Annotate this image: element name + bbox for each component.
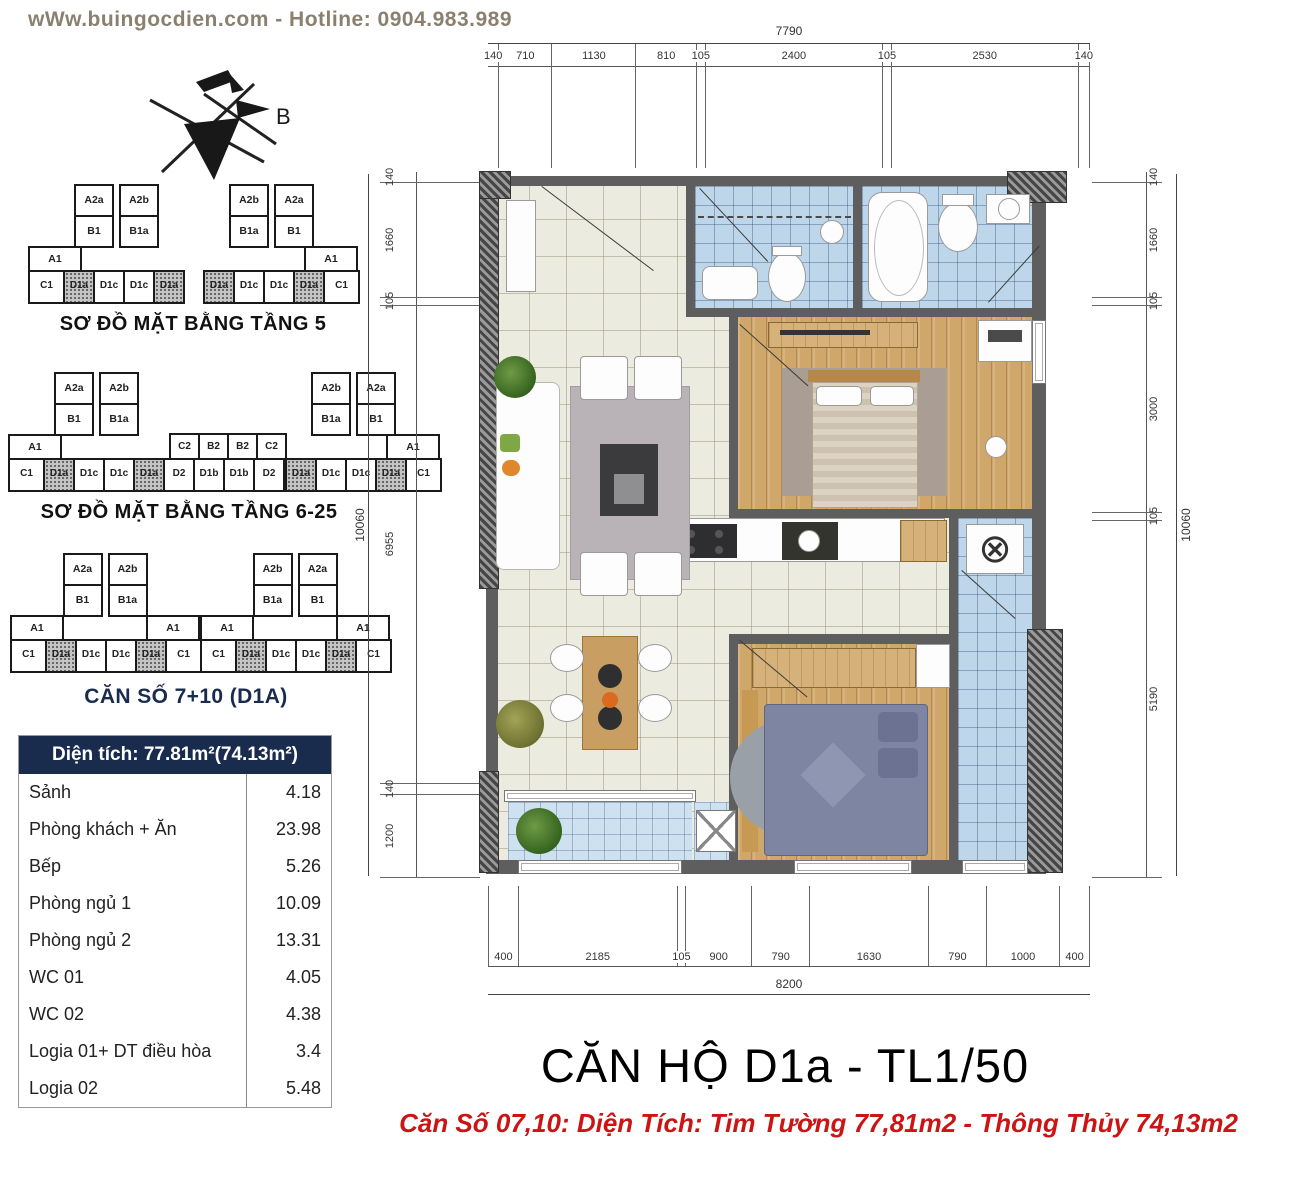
- toilet-wc2: [938, 202, 978, 252]
- dim-segment: 790: [929, 886, 987, 966]
- diagram-clusters: A2aB1A2bB1aA1A1C1D1aD1cD1cD1aC1A2bB1aA2a…: [10, 553, 362, 673]
- unit-row: D2D1bD1bD2: [163, 458, 285, 492]
- unit-cell: D1c: [123, 270, 155, 304]
- dim-label: 7790: [776, 24, 803, 38]
- bathtub-basin: [874, 200, 924, 296]
- dim-segment: 1630: [810, 886, 929, 966]
- dim-segment: 105: [380, 298, 480, 306]
- dim-segment: 105: [1092, 513, 1162, 521]
- plant: [516, 808, 562, 854]
- coffee-table-tray: [614, 474, 644, 504]
- tower-unit-label: B1: [65, 586, 101, 615]
- tower-unit-label: A2a: [56, 374, 92, 405]
- unit-cell: C1: [165, 639, 202, 673]
- unit-cell: D1b: [193, 458, 225, 492]
- window-bedroom2: [794, 860, 912, 874]
- watermark-text: wWw.buingocdien.com - Hotline: 0904.983.…: [28, 8, 512, 32]
- dim-label: 790: [948, 951, 966, 963]
- dining-plate: [598, 664, 622, 688]
- tower-unit-label: B1a: [313, 405, 349, 434]
- dim-label: 6955: [384, 532, 396, 556]
- dim-segment: 900: [686, 886, 752, 966]
- dim-segment: 2400: [706, 44, 883, 168]
- tower-unit-label: A2b: [110, 555, 146, 586]
- unit-cell: D1a: [45, 639, 77, 673]
- dim-segment: 140: [1079, 44, 1090, 168]
- sink-basin: [998, 198, 1020, 220]
- sink-bowl: [798, 530, 820, 552]
- unit-cell: D1a: [133, 458, 165, 492]
- dimension-strip-bottom: 400218510590079016307901000400 8200: [488, 886, 1090, 1001]
- unit-cell: D1c: [295, 639, 327, 673]
- dining-chair: [550, 694, 584, 722]
- dining-chair: [638, 644, 672, 672]
- a1-row: A1: [28, 246, 183, 272]
- wall-top: [486, 176, 1046, 186]
- window-loggia2: [518, 860, 682, 874]
- unit-cell: D1a: [325, 639, 357, 673]
- dim-label: 1630: [857, 951, 881, 963]
- monitor: [988, 330, 1022, 342]
- dim-label: 900: [710, 951, 728, 963]
- room-area: 23.98: [246, 811, 331, 848]
- column-bottom-right: [1028, 630, 1062, 872]
- tower-row: A2bB1aA2aB1: [253, 553, 338, 617]
- unit-cell: D1c: [233, 270, 265, 304]
- wall-loggia1-left: [949, 518, 958, 860]
- ottoman: [634, 356, 682, 400]
- tower-row: A2aB1A2bB1a: [74, 184, 183, 248]
- room-name: Phòng ngủ 2: [19, 922, 246, 959]
- kitchen-cabinet: [900, 520, 947, 562]
- dim-segment: 140: [380, 172, 480, 183]
- dim-label: 2530: [973, 50, 997, 62]
- area-table-body: Sảnh4.18Phòng khách + Ăn23.98Bếp5.26Phòn…: [19, 774, 331, 1107]
- tower-unit-label: B1: [76, 217, 112, 246]
- plant: [494, 356, 536, 398]
- building-cluster: A2aB1A2bB1aA1C1D1aD1cD1cD1a: [28, 184, 183, 304]
- tower-unit-label: B1a: [121, 217, 157, 246]
- table-row: Logia 025.48: [19, 1070, 331, 1107]
- room-area: 4.18: [246, 774, 331, 811]
- tower: A2bB1a: [108, 553, 148, 617]
- room-area: 5.26: [246, 848, 331, 885]
- wardrobe-bedroom2: [752, 648, 916, 688]
- room-name: Logia 02: [19, 1070, 246, 1107]
- tower-unit-label: A2b: [231, 186, 267, 217]
- tower-unit-label: A2a: [276, 186, 312, 217]
- dim-segment: 2185: [519, 886, 678, 966]
- dim-segment: 1660: [1092, 183, 1162, 298]
- tower-unit-label: B1a: [231, 217, 267, 246]
- tower-unit-label: A2a: [76, 186, 112, 217]
- dim-segment: 1200: [380, 795, 480, 878]
- unit-cell: D2: [163, 458, 195, 492]
- tower: A2aB1: [74, 184, 114, 248]
- dim-segment: 140: [488, 44, 499, 168]
- tower-unit-label: A2b: [121, 186, 157, 217]
- bed1-pillow: [816, 386, 862, 406]
- dimension-total-top: 7790: [488, 24, 1090, 44]
- tower: A2aB1: [63, 553, 103, 617]
- entry-closet: [506, 200, 536, 292]
- dim-label: 2185: [586, 951, 610, 963]
- unit-cell: D1b: [223, 458, 255, 492]
- unit-cell: D1c: [73, 458, 105, 492]
- dim-label: 790: [772, 951, 790, 963]
- dimension-line: [1176, 174, 1177, 876]
- room-name: Logia 01+ DT điều hòa: [19, 1033, 246, 1070]
- dim-segment: 140: [1092, 172, 1162, 183]
- fruit-bowl: [602, 692, 618, 708]
- wall-wc-bottom: [686, 308, 1046, 317]
- toilet-tank-wc1: [772, 246, 802, 256]
- tower-unit-label: B1a: [255, 586, 291, 615]
- unit-cell: A1: [146, 615, 200, 641]
- a1-row: A1A1: [10, 615, 200, 641]
- tower: A2bB1a: [229, 184, 269, 248]
- table-row: Phòng ngủ 110.09: [19, 885, 331, 922]
- tower: A2bB1a: [253, 553, 293, 617]
- compass-label: B: [276, 104, 291, 129]
- tower-unit-label: A2a: [300, 555, 336, 586]
- corner-unit-bedroom2: [916, 644, 950, 688]
- dim-label: 10060: [353, 508, 367, 541]
- unit-cell: D1a: [63, 270, 95, 304]
- dining-plate: [598, 706, 622, 730]
- building-cluster: A2aB1A2bB1aA1A1C1D1aD1cD1cD1aC1: [10, 553, 200, 673]
- wall-bedroom2-top: [729, 634, 949, 644]
- tower: A2bB1a: [99, 372, 139, 436]
- dim-segment: 400: [1060, 886, 1090, 966]
- dimension-segments-top: 140710113081010524001052530140: [488, 44, 1090, 168]
- table-row: Bếp5.26: [19, 848, 331, 885]
- room-area: 4.38: [246, 996, 331, 1033]
- table-row: WC 014.05: [19, 959, 331, 996]
- unit-cell: D1a: [43, 458, 75, 492]
- unit-row: C1D1aD1cD1cD1aC1: [10, 639, 200, 673]
- dimension-line: [488, 994, 1090, 995]
- page-title: CĂN HỘ D1a - TL1/50: [480, 1038, 1090, 1093]
- bed2-pillow: [878, 712, 918, 742]
- unit-cell: D1a: [285, 458, 317, 492]
- diagram-title: SƠ ĐỒ MẶT BẰNG TẦNG 6-25: [8, 501, 370, 524]
- floor-diagram-tang5: A2aB1A2bB1aA1C1D1aD1cD1cD1aA2bB1aA2aB1A1…: [28, 184, 358, 336]
- table-row: Sảnh4.18: [19, 774, 331, 811]
- dim-segment: 105: [883, 44, 892, 168]
- toilet-wc1: [768, 252, 806, 302]
- dim-label: 2400: [782, 50, 806, 62]
- dim-label: 1660: [384, 227, 396, 251]
- dim-segment: 3000: [1092, 306, 1162, 513]
- tv-cabinet: [768, 322, 918, 348]
- tower-unit-label: A2b: [101, 374, 137, 405]
- unit-cell: D1c: [93, 270, 125, 304]
- dim-segment: 6955: [380, 306, 480, 784]
- unit-row: C1D1aD1cD1cD1a: [28, 270, 183, 304]
- wall-bedroom1-left: [729, 317, 738, 509]
- dining-chair: [638, 694, 672, 722]
- tower: A2aB1: [274, 184, 314, 248]
- unit-row: C1D1aD1cD1cD1a: [8, 458, 163, 492]
- sofa-pillow-green: [500, 434, 520, 452]
- dimension-strip-top: 7790 140710113081010524001052530140: [488, 24, 1090, 168]
- room-name: Phòng ngủ 1: [19, 885, 246, 922]
- dim-segment: 105: [697, 44, 706, 168]
- unit-row: D1aD1cD1cD1aC1: [203, 270, 358, 304]
- dim-label: 140: [1075, 50, 1093, 62]
- unit-cell: C1: [28, 270, 65, 304]
- floor-plan: ⊗: [480, 172, 1070, 878]
- dim-label: 1000: [1011, 951, 1035, 963]
- diagram-clusters: A2aB1A2bB1aA1C1D1aD1cD1cD1aA2bB1aA2aB1A1…: [28, 184, 358, 304]
- room-name: Sảnh: [19, 774, 246, 811]
- column-top-left: [480, 172, 510, 198]
- unit-cell: A1: [8, 434, 62, 460]
- dim-label: 1200: [384, 824, 396, 848]
- unit-cell: D1c: [75, 639, 107, 673]
- tower: A2bB1a: [311, 372, 351, 436]
- wall-wc1-left: [686, 186, 695, 308]
- bed1-headboard: [808, 370, 920, 382]
- toilet-tank-wc2: [942, 194, 974, 206]
- window-bedroom1: [1032, 320, 1046, 384]
- room-area: 4.05: [246, 959, 331, 996]
- bed2-pillow: [878, 748, 918, 778]
- building-cluster: A2aB1A2bB1aA1C1D1aD1cD1cD1a: [8, 372, 163, 492]
- floor-diagram-can-so-7-10: A2aB1A2bB1aA1A1C1D1aD1cD1cD1aC1A2bB1aA2a…: [10, 553, 362, 709]
- unit-cell: C1: [200, 639, 237, 673]
- tv-screen: [780, 330, 870, 335]
- unit-cell: D1c: [105, 639, 137, 673]
- unit-cell: D1a: [203, 270, 235, 304]
- tower-row: A2bB1aA2aB1: [229, 184, 358, 248]
- unit-cell: C1: [323, 270, 360, 304]
- sofa-pillow-orange: [502, 460, 520, 476]
- dim-segment: 810: [636, 44, 697, 168]
- dim-segment: 2530: [892, 44, 1079, 168]
- building-cluster: C2B2B2C2D2D1bD1bD2: [163, 433, 285, 492]
- unit-cell: D1a: [235, 639, 267, 673]
- page-subtitle: Căn Số 07,10: Diện Tích: Tim Tường 77,81…: [330, 1108, 1307, 1139]
- window-loggia2-top: [504, 790, 696, 802]
- dim-label: 1660: [1148, 227, 1160, 251]
- dining-chair: [550, 644, 584, 672]
- sofa: [496, 382, 560, 570]
- room-area: 3.4: [246, 1033, 331, 1070]
- tower-row: A2aB1A2bB1a: [63, 553, 148, 617]
- dimension-strip-left: 10060 140166010569551401200: [356, 172, 480, 878]
- room-area: 13.31: [246, 922, 331, 959]
- wall-bedroom1-bottom: [729, 509, 1045, 518]
- ottoman: [580, 356, 628, 400]
- dim-segment: 1660: [380, 183, 480, 298]
- dim-segment: 1000: [987, 886, 1060, 966]
- room-area: 5.48: [246, 1070, 331, 1107]
- room-name: Bếp: [19, 848, 246, 885]
- a1-row: A1: [203, 246, 358, 272]
- tower-unit-label: A2b: [313, 374, 349, 405]
- dim-segment: 790: [752, 886, 810, 966]
- dim-label: 1130: [582, 50, 606, 62]
- unit-cell: A1: [200, 615, 254, 641]
- unit-cell: C1: [8, 458, 45, 492]
- dimension-segments-bottom: 400218510590079016307901000400: [488, 886, 1090, 967]
- table-row: Phòng ngủ 213.31: [19, 922, 331, 959]
- dim-segment: 105: [1092, 298, 1162, 306]
- dim-label: 8200: [772, 977, 807, 991]
- area-table-header: Diện tích: 77.81m²(74.13m²): [19, 736, 331, 774]
- ottoman: [634, 552, 682, 596]
- tower-unit-label: B1: [300, 586, 336, 615]
- room-name: Phòng khách + Ăn: [19, 811, 246, 848]
- room-name: WC 02: [19, 996, 246, 1033]
- plant: [496, 700, 544, 748]
- dim-segment: 710: [499, 44, 552, 168]
- ac-unit-symbol: ⊗: [966, 524, 1024, 574]
- tower-row: A2aB1A2bB1a: [54, 372, 163, 436]
- dim-segment: 105: [678, 886, 687, 966]
- unit-cell: D1c: [265, 639, 297, 673]
- table-row: Phòng khách + Ăn23.98: [19, 811, 331, 848]
- compass-north-icon: B: [142, 62, 302, 187]
- unit-cell: D1c: [263, 270, 295, 304]
- unit-cell: C1: [10, 639, 47, 673]
- floor-diagram-tang6-25: A2aB1A2bB1aA1C1D1aD1cD1cD1aC2B2B2C2D2D1b…: [8, 372, 370, 524]
- dimension-segments-left: 140166010569551401200: [380, 172, 480, 878]
- tower-unit-label: B1: [276, 217, 312, 246]
- dim-label: 5190: [1148, 687, 1160, 711]
- diagram-clusters: A2aB1A2bB1aA1C1D1aD1cD1cD1aC2B2B2C2D2D1b…: [8, 372, 370, 492]
- bed1-pillow: [870, 386, 914, 406]
- window-loggia1: [962, 860, 1028, 874]
- area-table: Diện tích: 77.81m²(74.13m²) Sảnh4.18Phòn…: [18, 735, 332, 1108]
- table-row: WC 024.38: [19, 996, 331, 1033]
- diagram-title: SƠ ĐỒ MẶT BẰNG TẦNG 5: [28, 313, 358, 336]
- dimension-segments-right: 140166010530001055190: [1092, 172, 1162, 878]
- wall-wc1-wc2: [853, 186, 862, 308]
- dimension-line: [368, 174, 369, 876]
- bathtub-wc1: [702, 266, 758, 300]
- unit-cell: D1c: [315, 458, 347, 492]
- dim-label: 400: [494, 951, 512, 963]
- table-row: Logia 01+ DT điều hòa3.4: [19, 1033, 331, 1070]
- dim-label: 810: [657, 50, 675, 62]
- unit-cell: A1: [10, 615, 64, 641]
- tower-unit-label: A2b: [255, 555, 291, 586]
- ac-condenser: [696, 810, 736, 852]
- floor-drain-icon: [820, 220, 844, 244]
- unit-cell: D1a: [153, 270, 185, 304]
- unit-cell: A1: [28, 246, 82, 272]
- dim-segment: 5190: [1092, 521, 1162, 878]
- tower-unit-label: B1a: [101, 405, 137, 434]
- room-area: 10.09: [246, 885, 331, 922]
- dim-segment: 140: [380, 784, 480, 795]
- unit-cell: D1c: [103, 458, 135, 492]
- tower-unit-label: B1: [56, 405, 92, 434]
- dim-label: 400: [1065, 951, 1083, 963]
- tower: A2aB1: [298, 553, 338, 617]
- tower: A2aB1: [54, 372, 94, 436]
- dim-segment: 400: [488, 886, 519, 966]
- column-bottom-left: [480, 772, 498, 872]
- room-name: WC 01: [19, 959, 246, 996]
- dim-label: 710: [516, 50, 534, 62]
- ottoman: [580, 552, 628, 596]
- dim-label: 3000: [1148, 396, 1160, 420]
- dim-label: 10060: [1179, 508, 1193, 541]
- nightstand-bedroom1: [985, 436, 1007, 458]
- unit-cell: D1a: [293, 270, 325, 304]
- shower-curtain-line: [698, 216, 851, 218]
- dimension-strip-right: 140166010530001055190 10060: [1092, 172, 1192, 878]
- unit-cell: D2: [253, 458, 285, 492]
- unit-cell: D1a: [135, 639, 167, 673]
- a1-row: A1: [8, 434, 163, 460]
- unit-cell: A1: [304, 246, 358, 272]
- building-cluster: A2bB1aA2aB1A1D1aD1cD1cD1aC1: [203, 184, 358, 304]
- dim-segment: 1130: [552, 44, 636, 168]
- dimension-total-bottom: 8200: [488, 967, 1090, 1001]
- diagram-title: CĂN SỐ 7+10 (D1A): [10, 685, 362, 709]
- tower: A2bB1a: [119, 184, 159, 248]
- tower-unit-label: B1a: [110, 586, 146, 615]
- tower-unit-label: A2a: [65, 555, 101, 586]
